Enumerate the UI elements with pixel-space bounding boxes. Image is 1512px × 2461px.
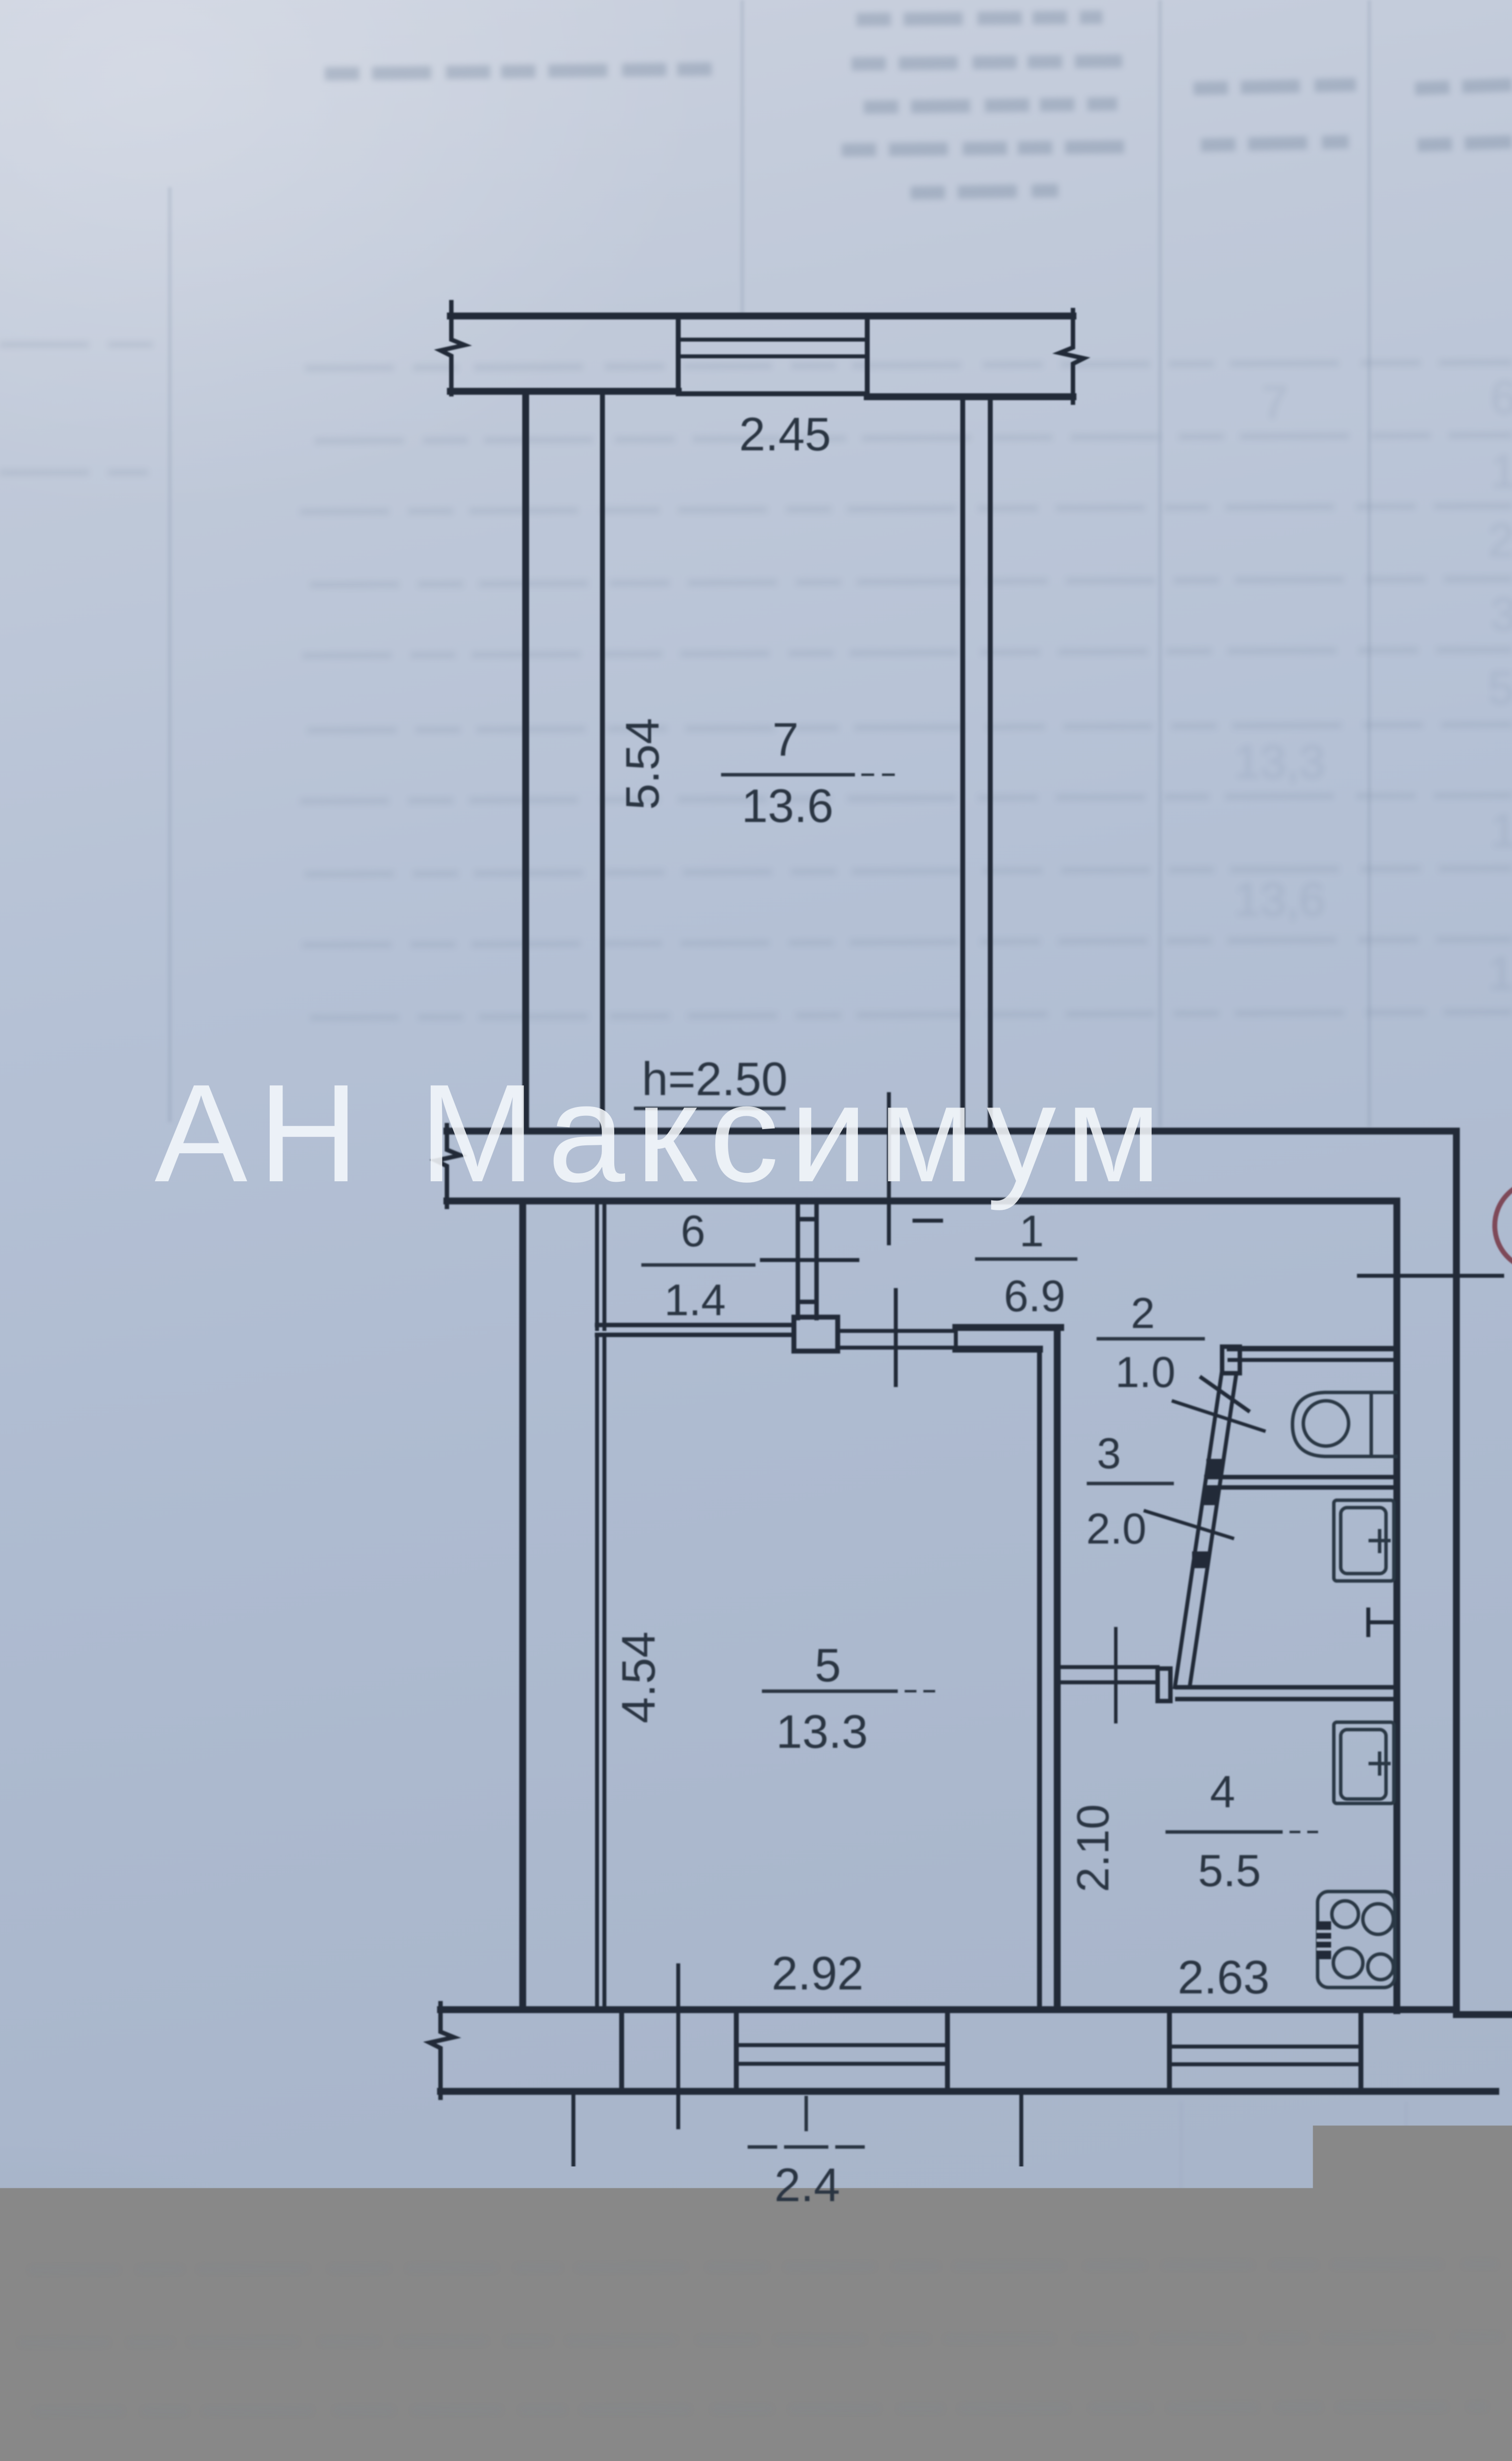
svg-text:13.3: 13.3 [776, 1705, 868, 1758]
svg-text:4: 4 [1210, 1767, 1235, 1817]
svg-text:АН Максимум: АН Максимум [155, 1055, 1172, 1212]
svg-text:7: 7 [772, 713, 798, 766]
svg-text:3: 3 [1491, 588, 1512, 640]
svg-text:2.10: 2.10 [1068, 1804, 1118, 1892]
svg-text:2.0: 2.0 [1086, 1504, 1146, 1553]
svg-text:2.4: 2.4 [774, 2159, 840, 2211]
svg-text:5: 5 [1488, 662, 1512, 714]
svg-text:2: 2 [1488, 514, 1512, 567]
svg-text:2: 2 [1131, 1289, 1155, 1337]
svg-text:1.0: 1.0 [1115, 1348, 1175, 1396]
svg-text:1: 1 [1491, 445, 1512, 498]
svg-text:5.5: 5.5 [1198, 1846, 1261, 1896]
svg-text:3: 3 [1097, 1429, 1121, 1478]
svg-text:1.4: 1.4 [664, 1276, 725, 1325]
svg-text:13,3: 13,3 [1234, 736, 1325, 788]
svg-text:2.45: 2.45 [739, 408, 831, 461]
svg-text:6: 6 [1491, 372, 1512, 424]
svg-text:2.92: 2.92 [772, 1947, 864, 2000]
svg-text:5: 5 [815, 1639, 841, 1692]
svg-text:2.63: 2.63 [1178, 1951, 1270, 2004]
svg-text:13,6: 13,6 [1234, 874, 1325, 926]
svg-text:1: 1 [1019, 1207, 1044, 1256]
svg-text:1: 1 [1488, 947, 1512, 1000]
svg-text:7: 7 [1262, 377, 1288, 429]
svg-text:13.6: 13.6 [742, 780, 834, 832]
svg-text:5.54: 5.54 [616, 718, 669, 810]
svg-text:1: 1 [1491, 805, 1512, 857]
svg-text:4.54: 4.54 [612, 1632, 665, 1724]
svg-text:6: 6 [681, 1207, 705, 1256]
svg-text:6.9: 6.9 [1004, 1272, 1065, 1321]
